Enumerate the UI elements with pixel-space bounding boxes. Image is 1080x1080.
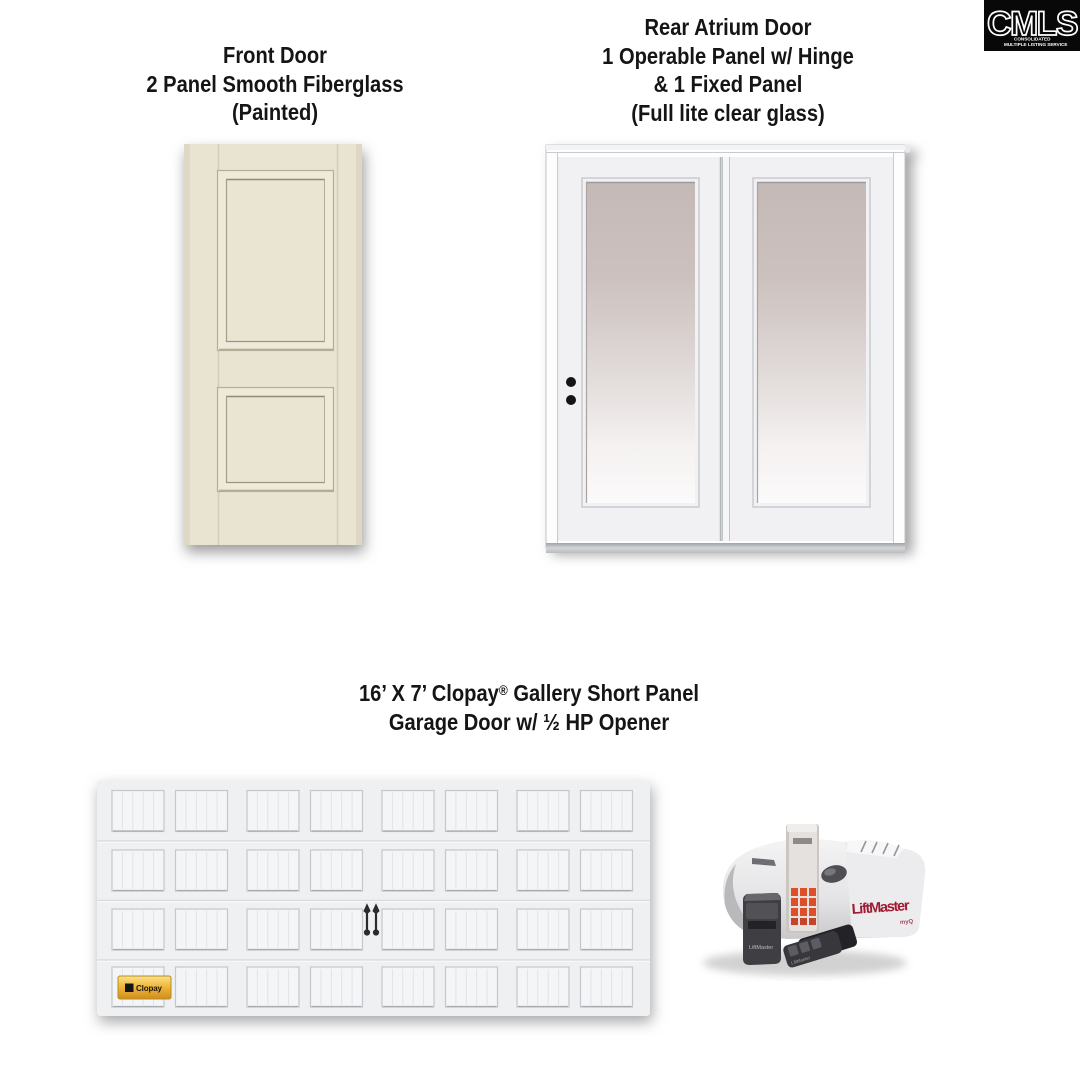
svg-text:CONSOLIDATED: CONSOLIDATED bbox=[1014, 37, 1051, 42]
svg-text:LiftMaster: LiftMaster bbox=[749, 945, 773, 951]
svg-text:MULTIPLE LISTING SERVICE: MULTIPLE LISTING SERVICE bbox=[1004, 42, 1067, 47]
svg-text:Clopay: Clopay bbox=[136, 984, 163, 993]
svg-text:myQ: myQ bbox=[900, 919, 914, 926]
